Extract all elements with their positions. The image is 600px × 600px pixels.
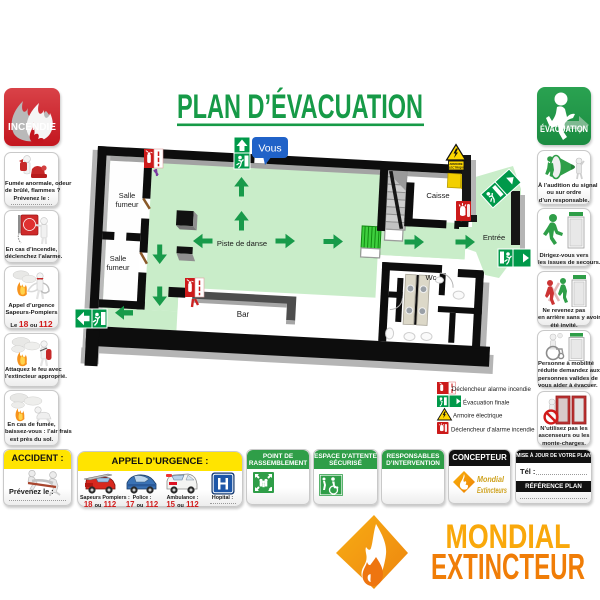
svg-text:ELECTRIQUE: ELECTRIQUE <box>447 166 465 170</box>
svg-text:Bar: Bar <box>237 310 250 319</box>
svg-text:Déclencheur alarme incendie: Déclencheur alarme incendie <box>452 386 532 393</box>
svg-text:Caisse: Caisse <box>426 191 449 200</box>
svg-text:fumeur: fumeur <box>115 200 139 209</box>
svg-text:Wc: Wc <box>426 273 437 282</box>
svg-text:Évacuation finale: Évacuation finale <box>463 400 510 407</box>
svg-text:Mondial: Mondial <box>477 474 505 484</box>
svg-text:Salle: Salle <box>119 191 135 200</box>
svg-text:Extincteurs: Extincteurs <box>477 485 507 495</box>
svg-text:Piste de danse: Piste de danse <box>217 239 267 248</box>
svg-text:EXTINCTEUR: EXTINCTEUR <box>431 546 585 587</box>
svg-text:H: H <box>217 475 229 494</box>
svg-text:Entrée: Entrée <box>483 233 505 242</box>
svg-text:Salle: Salle <box>110 254 126 263</box>
svg-text:INCENDIE: INCENDIE <box>8 122 56 133</box>
svg-text:Armoire électrique: Armoire électrique <box>453 413 503 420</box>
svg-text:Déclencheur d'alarme incendie: Déclencheur d'alarme incendie <box>451 427 535 434</box>
svg-text:fumeur: fumeur <box>106 263 130 272</box>
svg-text:Vous: Vous <box>258 143 281 155</box>
